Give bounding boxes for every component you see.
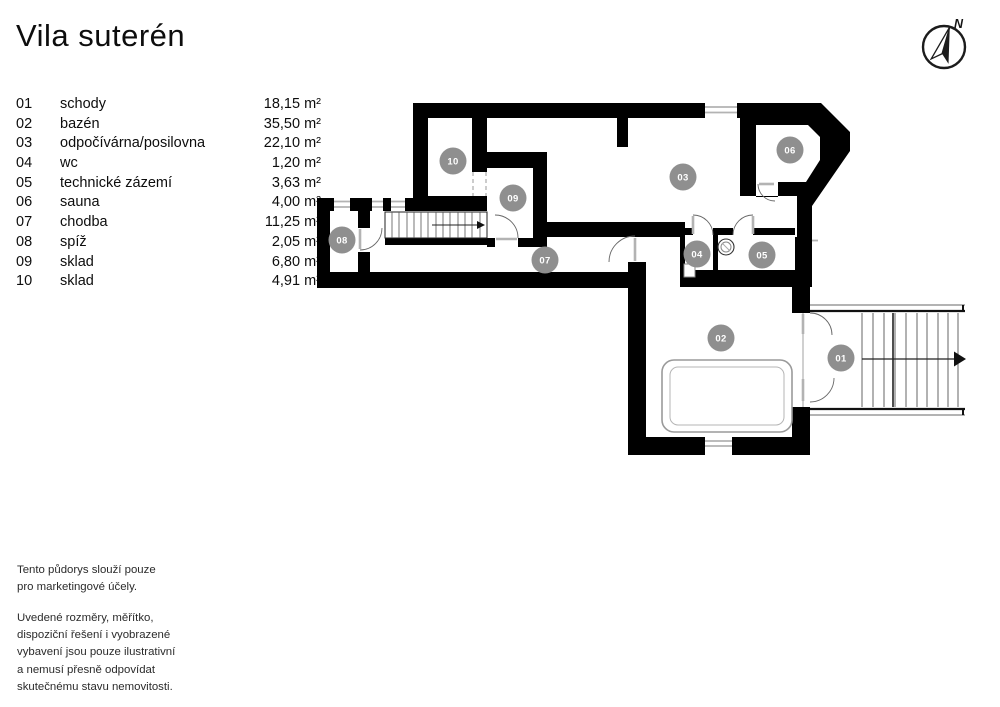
svg-text:08: 08: [336, 235, 347, 246]
svg-text:02: 02: [715, 333, 726, 344]
svg-text:05: 05: [756, 250, 768, 261]
interior-stairs: [385, 212, 487, 238]
svg-text:04: 04: [691, 249, 703, 260]
room-badge-01: 01: [828, 345, 855, 372]
room-badge-02: 02: [708, 325, 735, 352]
svg-text:07: 07: [539, 255, 550, 266]
dashed-opening: [473, 172, 486, 196]
svg-text:10: 10: [447, 156, 458, 167]
room-badge-08: 08: [329, 227, 356, 254]
pool: [662, 360, 792, 432]
svg-text:06: 06: [784, 145, 795, 156]
room-badges: 01020304050607080910: [329, 137, 855, 372]
svg-text:03: 03: [677, 172, 688, 183]
room-badge-09: 09: [500, 185, 527, 212]
room-badge-07: 07: [532, 247, 559, 274]
room-badge-10: 10: [440, 148, 467, 175]
north-compass-icon: N: [923, 17, 965, 68]
room-badge-04: 04: [684, 241, 711, 268]
room-badge-06: 06: [777, 137, 804, 164]
compass-n-label: N: [954, 17, 964, 31]
disclaimer-paragraph-1: Tento půdorys slouží pouze pro marketing…: [17, 562, 192, 596]
disclaimer: Tento půdorys slouží pouze pro marketing…: [17, 562, 192, 707]
svg-text:09: 09: [507, 193, 518, 204]
toilet-icon: [718, 239, 734, 255]
page: Vila suterén 01schody18,15 m²02bazén35,5…: [0, 0, 1000, 707]
room-badge-03: 03: [670, 164, 697, 191]
svg-text:01: 01: [835, 353, 847, 364]
disclaimer-paragraph-2: Uvedené rozměry, měřítko, dispoziční řeš…: [17, 610, 192, 696]
room-badge-05: 05: [749, 242, 776, 269]
